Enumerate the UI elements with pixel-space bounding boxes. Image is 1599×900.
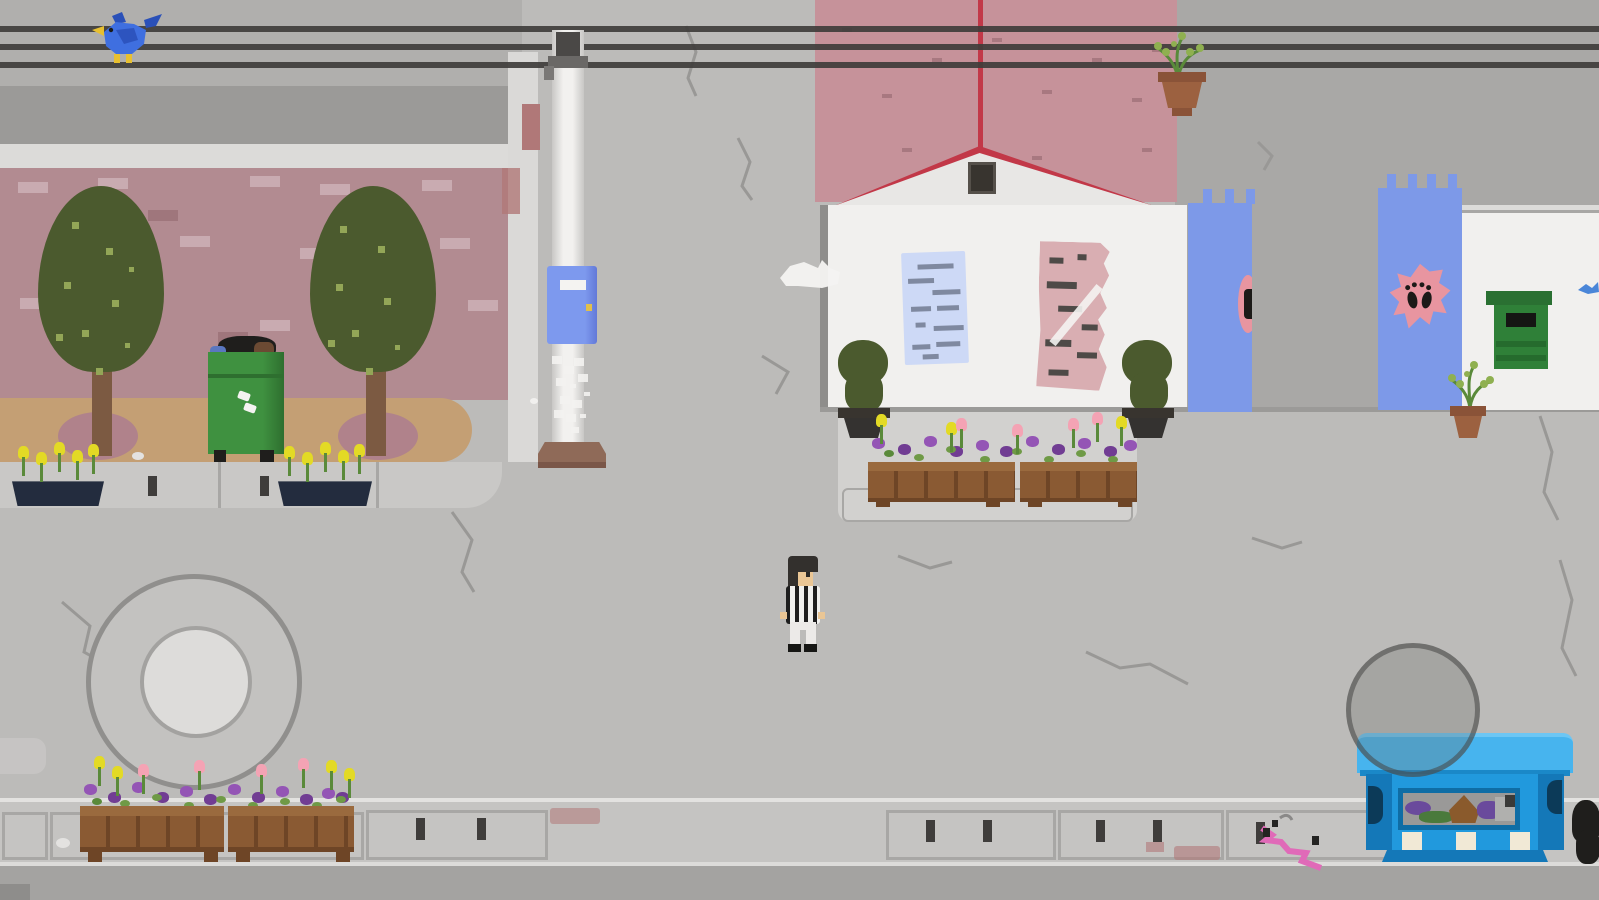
leaf-row [92,798,102,805]
planter-leg [204,852,218,862]
planter-leg [88,852,102,862]
power-line [0,62,1599,68]
pink-flower [298,758,309,771]
yellow-flower [112,766,123,779]
blue-call-box[interactable] [547,266,597,344]
dumpster-handle-hole[interactable] [1547,780,1562,814]
wooden-planter [80,806,224,852]
dumpster-label [1510,832,1530,850]
trash-bags [1576,830,1599,864]
yellow-flower [326,760,337,773]
player-character[interactable] [784,556,822,652]
purple-flower-row [84,784,97,795]
hanging-pot-rim [1158,72,1206,82]
planter-leg [336,852,350,862]
character-eye [806,572,810,577]
character-hair-side [788,564,798,588]
drain-slot [1096,820,1105,842]
character-shoe [804,644,817,652]
red-stain [1146,842,1164,852]
pebble [530,398,538,404]
pole-crossarm-hardware [548,56,588,68]
drain-slot [416,818,425,840]
sidewalk-tile [886,810,1056,860]
power-line [0,26,1599,32]
dumpster-window [1398,788,1520,830]
fountain-inner-circle [140,626,252,738]
bottom-road-dark-corner [0,884,30,900]
character-hand [818,612,825,619]
call-box-slot [560,280,586,290]
dumpster-handle-hole[interactable] [1368,786,1383,824]
pink-flower [138,764,149,777]
drain-slot [983,820,992,842]
call-box-keyhole [586,304,592,311]
pole-base [538,442,606,468]
red-stain [1174,846,1220,860]
character-hand [780,612,787,619]
hanging-pot-foot [1172,108,1192,116]
hanging-pot [1162,82,1202,108]
drain-slot [926,820,935,842]
trash-green [1419,811,1453,823]
sidewalk-tile [2,812,48,860]
drain-slot [1153,820,1162,842]
game-scene [0,0,1599,900]
sidewalk-tile [366,810,548,860]
planter-leg [236,852,250,862]
dumpster-base [1382,850,1548,862]
overlay-circle [1346,643,1480,777]
trash-dark [1505,795,1515,807]
pink-graffiti [1250,810,1350,866]
pink-flower [194,760,205,773]
drain-slot [477,818,486,840]
yellow-flower [94,756,105,769]
dumpster-label [1456,832,1476,850]
character-leg-gap [800,630,806,644]
character-shirt [786,586,820,624]
bottom-road [0,866,1599,900]
pink-flower [256,764,267,777]
pebble [56,838,70,848]
dumpster-label [1402,832,1422,850]
wooden-planter [228,806,354,852]
utility-pole [552,30,584,448]
pole-crossarm-hardware [544,66,554,80]
red-stain [550,808,600,824]
corner-patch [0,738,46,774]
character-shoe [788,644,801,652]
blue-dumpster[interactable] [1366,774,1564,850]
yellow-flower [344,768,355,781]
pole-graffiti [552,356,562,364]
blue-bird [86,10,164,66]
power-line [0,44,1599,50]
trash-brown [1449,795,1479,823]
